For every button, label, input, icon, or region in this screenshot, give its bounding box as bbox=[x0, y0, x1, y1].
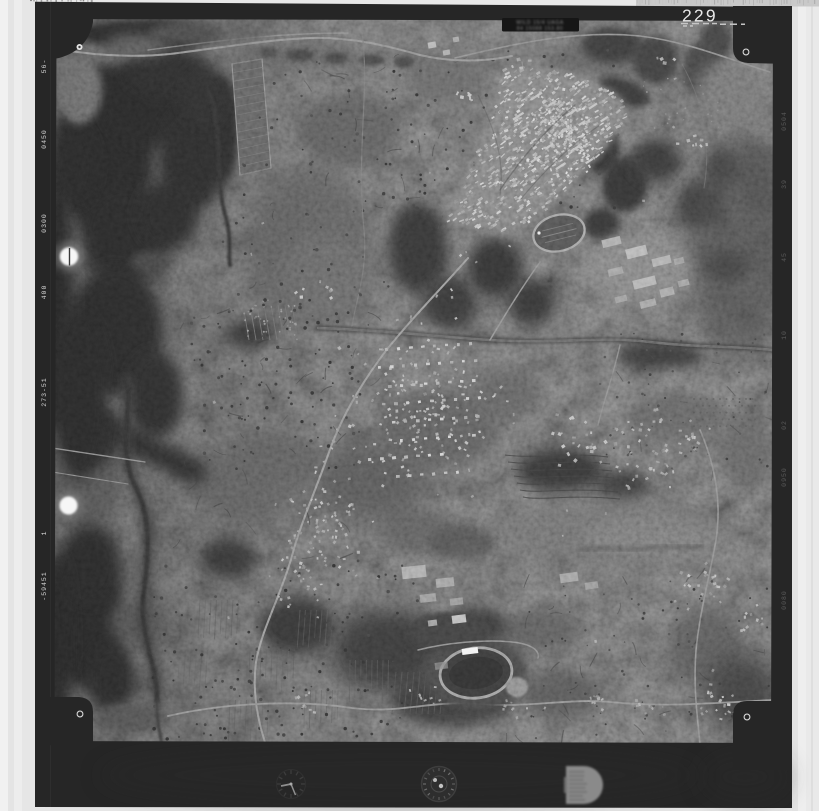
svg-text:02: 02 bbox=[781, 420, 788, 430]
svg-text:0504: 0504 bbox=[781, 111, 788, 131]
svg-text:0080: 0080 bbox=[781, 590, 788, 610]
svg-text:56-: 56- bbox=[41, 59, 48, 74]
svg-text:0450: 0450 bbox=[41, 129, 48, 149]
svg-text:1: 1 bbox=[41, 531, 48, 536]
svg-text:10: 10 bbox=[781, 330, 788, 340]
svg-text:39: 39 bbox=[781, 179, 788, 189]
svg-text:0950: 0950 bbox=[781, 467, 788, 487]
svg-text:273-51: 273-51 bbox=[41, 377, 48, 406]
svg-text:229: 229 bbox=[682, 6, 718, 26]
svg-text:0300: 0300 bbox=[41, 213, 48, 233]
svg-text:400: 400 bbox=[41, 285, 48, 300]
svg-text:84 15088 153.80: 84 15088 153.80 bbox=[517, 26, 564, 32]
svg-text:45: 45 bbox=[781, 252, 788, 262]
svg-text:-59451: -59451 bbox=[41, 571, 48, 600]
